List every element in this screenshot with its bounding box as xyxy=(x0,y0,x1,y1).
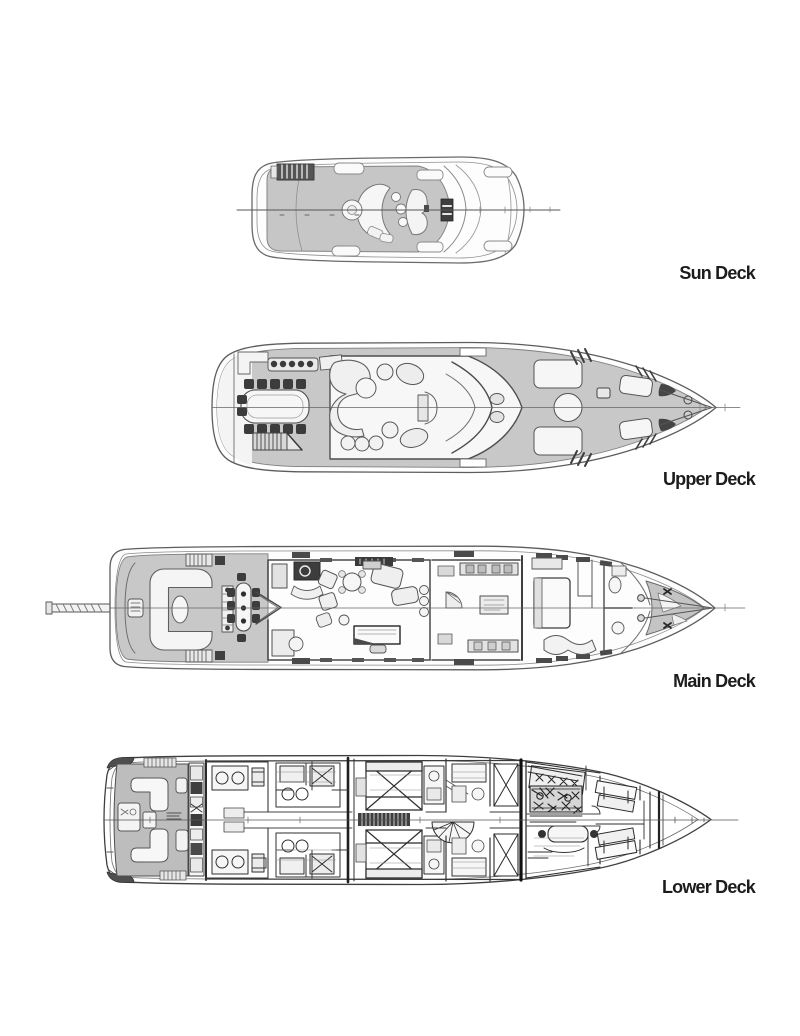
svg-text:Sun Deck: Sun Deck xyxy=(679,263,756,283)
svg-text:Main Deck: Main Deck xyxy=(673,671,757,691)
svg-text:Upper Deck: Upper Deck xyxy=(663,469,757,489)
svg-text:Lower Deck: Lower Deck xyxy=(662,877,757,897)
